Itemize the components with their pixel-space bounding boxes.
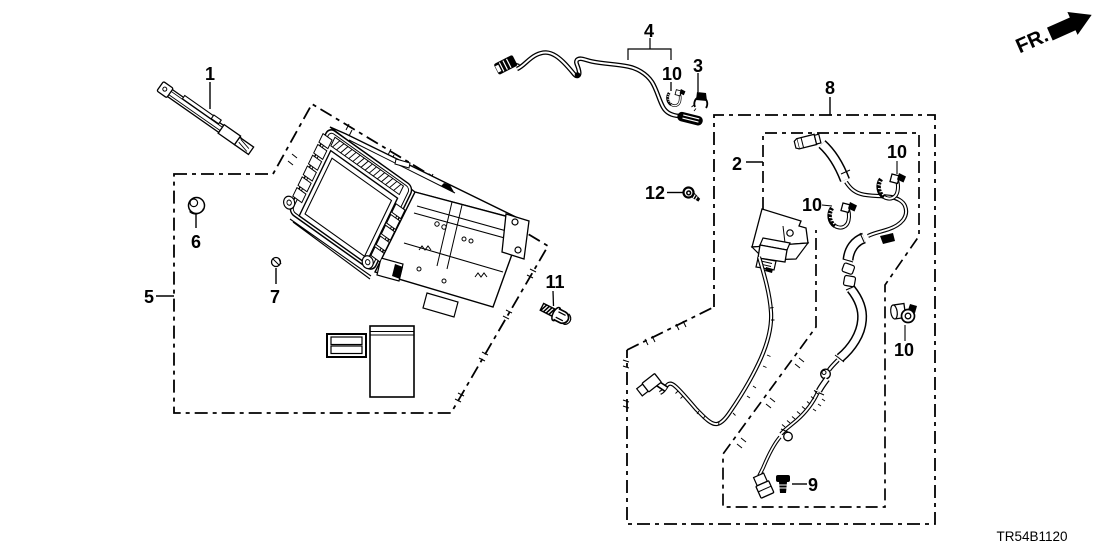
svg-text:10: 10 — [802, 195, 822, 215]
svg-text:TR54B1120: TR54B1120 — [996, 529, 1067, 544]
svg-text:7: 7 — [270, 287, 280, 307]
svg-text:10: 10 — [887, 142, 907, 162]
svg-text:4: 4 — [644, 21, 654, 41]
svg-text:3: 3 — [693, 56, 703, 76]
svg-text:8: 8 — [825, 78, 835, 98]
svg-text:1: 1 — [205, 64, 215, 84]
svg-text:6: 6 — [191, 232, 201, 252]
svg-text:5: 5 — [144, 287, 154, 307]
svg-text:2: 2 — [732, 154, 742, 174]
svg-text:10: 10 — [662, 64, 682, 84]
svg-text:10: 10 — [894, 340, 914, 360]
svg-text:11: 11 — [545, 272, 564, 292]
svg-text:9: 9 — [808, 475, 818, 495]
svg-text:12: 12 — [645, 183, 665, 203]
